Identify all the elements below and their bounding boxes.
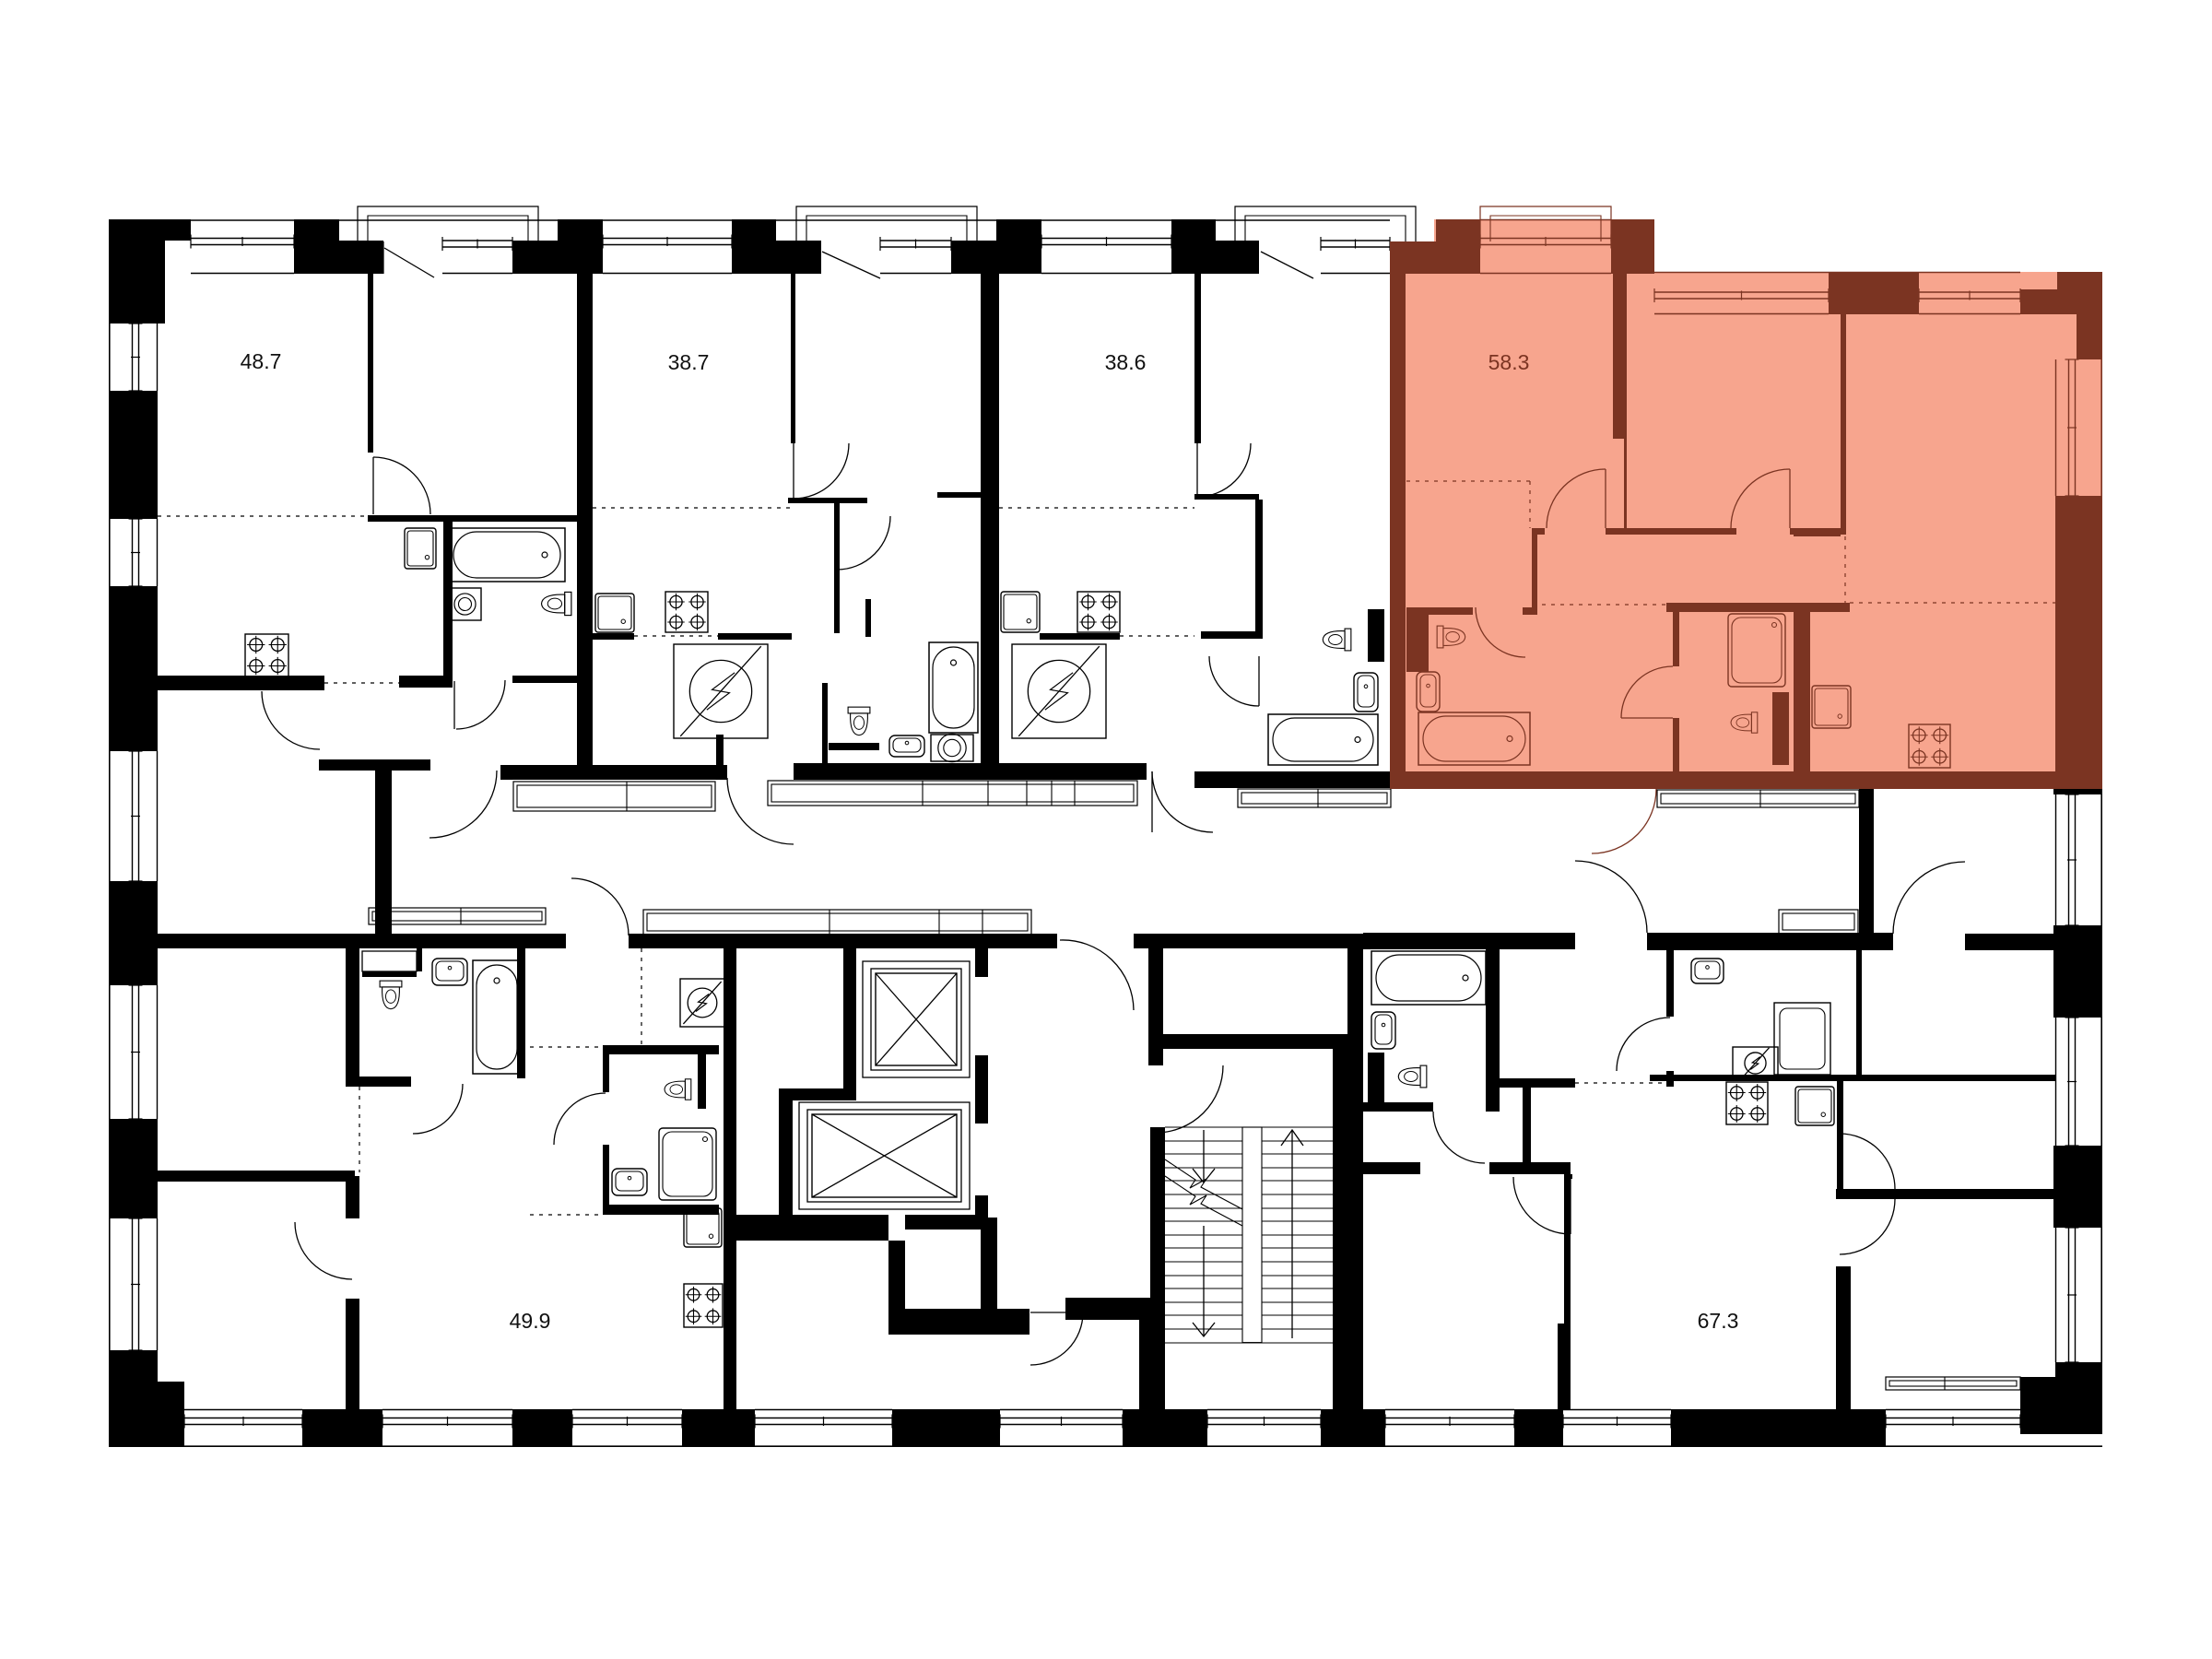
svg-text:38.6: 38.6 — [1105, 350, 1147, 374]
svg-text:58.3: 58.3 — [1488, 350, 1530, 374]
svg-text:67.3: 67.3 — [1698, 1309, 1739, 1333]
svg-text:38.7: 38.7 — [668, 350, 710, 374]
svg-text:48.7: 48.7 — [241, 349, 282, 373]
svg-text:49.9: 49.9 — [510, 1309, 551, 1333]
